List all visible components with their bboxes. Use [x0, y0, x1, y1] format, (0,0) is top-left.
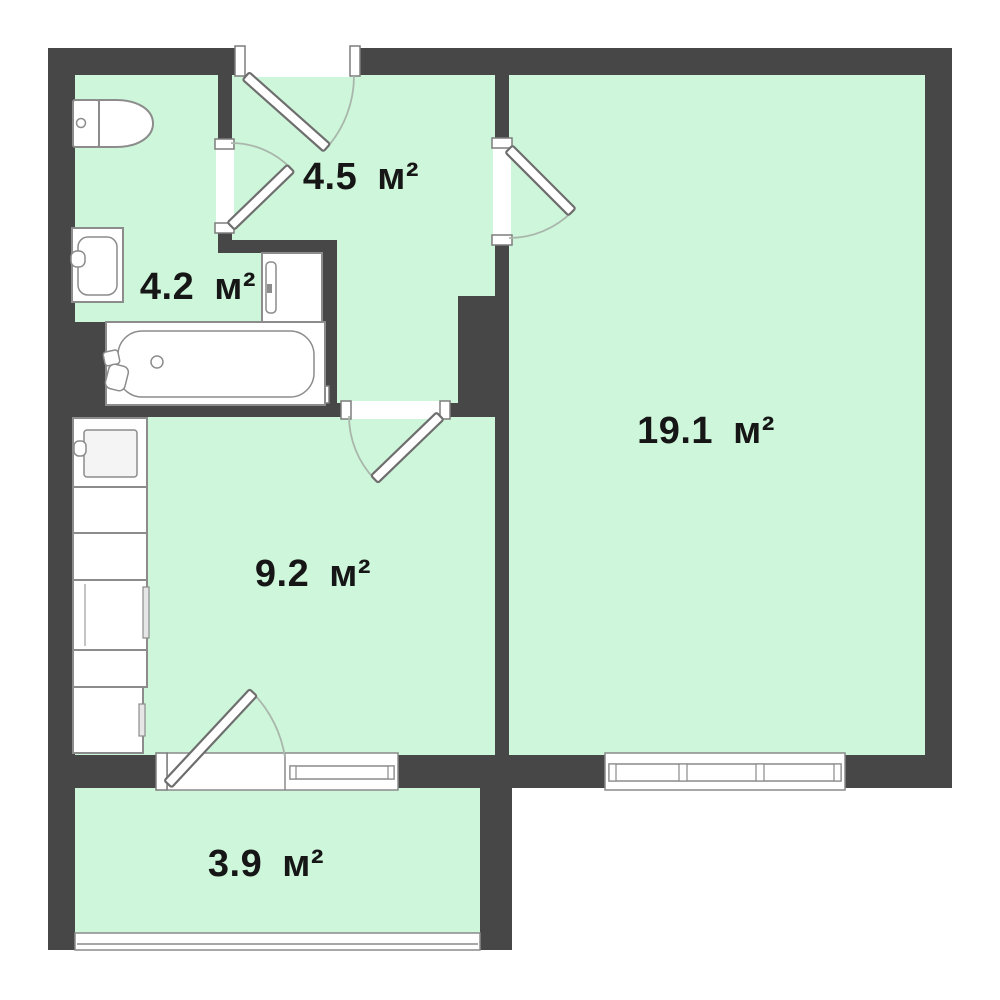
kitchen-counter	[73, 418, 149, 753]
fridge	[73, 687, 143, 753]
stove-unit	[73, 580, 147, 650]
toilet-bowl	[99, 100, 153, 147]
counter-unit-1	[73, 487, 147, 533]
label-bathroom-area: 4.2 м²	[140, 266, 256, 308]
bathroom-door-opening	[216, 149, 234, 223]
bathtub-faucet	[103, 349, 121, 366]
kitchen-window-end-right	[388, 766, 394, 779]
counter-unit-2	[73, 533, 147, 580]
living-window-end-right	[834, 764, 841, 781]
toilet-flush-button	[77, 119, 86, 128]
wall-left	[48, 48, 75, 950]
wall-kitchen-living	[495, 417, 509, 755]
counter-unit-3	[73, 650, 147, 687]
wall-hall-living-upper	[495, 73, 509, 138]
stove-handle	[143, 587, 149, 638]
floor-plan-canvas: 4.5 м² 4.2 м² 19.1 м² 9.2 м² 3.9 м²	[0, 0, 1000, 1000]
balcony-glazing	[75, 933, 480, 950]
entrance-jamb-right	[350, 46, 360, 76]
bathroom-sink	[71, 228, 123, 302]
living-window-end-left	[609, 764, 616, 781]
bathroom-sink-tap	[71, 251, 85, 267]
wall-bathtub-pier	[75, 322, 106, 417]
bathtub-drain	[151, 356, 163, 368]
living-window-mullion-1	[679, 764, 687, 781]
wall-right	[925, 48, 952, 788]
entrance-opening	[245, 46, 350, 77]
bathroom-door-jamb-top	[215, 139, 234, 149]
living-door-opening	[493, 148, 511, 235]
wall-balcony-right	[480, 788, 512, 950]
label-balcony-area: 3.9 м²	[208, 843, 324, 885]
label-hallway-area: 4.5 м²	[303, 156, 419, 198]
balcony-door-jamb-left	[156, 753, 167, 790]
washing-machine	[262, 253, 322, 322]
wall-top-right	[352, 48, 952, 75]
kitchen-window-end-left	[290, 766, 296, 779]
label-kitchen-area: 9.2 м²	[255, 553, 371, 595]
wall-corner-block	[458, 296, 509, 417]
kitchen-door-opening	[351, 401, 440, 419]
living-door-jamb-top	[492, 138, 512, 148]
entrance-jamb-left	[235, 46, 245, 76]
washing-machine-latch	[267, 284, 272, 293]
bathroom-sink-basin	[78, 237, 117, 295]
living-window-mullion-2	[756, 764, 764, 781]
toilet	[73, 100, 153, 147]
living-window-glazing	[609, 764, 841, 781]
bathtub-basin	[118, 331, 314, 397]
kitchen-sink-tap	[74, 441, 86, 456]
label-living-area: 19.1 м²	[637, 410, 775, 452]
wall-hall-living-lower	[495, 245, 509, 296]
wall-bathroom-hall-upper	[218, 73, 232, 149]
floor-plan-svg: 4.5 м² 4.2 м² 19.1 м² 9.2 м² 3.9 м²	[0, 0, 1000, 1000]
kitchen-window-glazing	[290, 766, 394, 779]
wall-top-left	[48, 48, 243, 75]
living-door-jamb-bottom	[492, 235, 512, 245]
kitchen-sink-basin	[84, 430, 137, 477]
fridge-handle	[139, 704, 145, 736]
wall-washer-nook-top	[218, 240, 337, 253]
bathtub	[103, 322, 325, 405]
